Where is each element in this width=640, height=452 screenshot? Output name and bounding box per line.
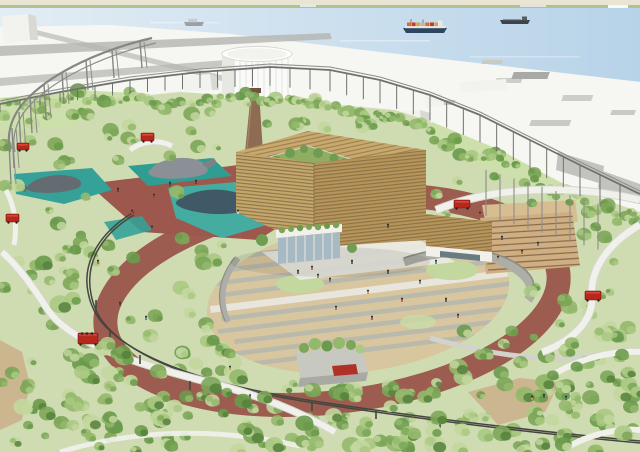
person xyxy=(169,182,171,186)
red-ride-car xyxy=(78,332,98,345)
person xyxy=(371,316,373,320)
person xyxy=(237,210,239,214)
person xyxy=(543,394,545,398)
person xyxy=(195,180,197,184)
scene-svg xyxy=(0,0,640,452)
person xyxy=(153,194,155,198)
person xyxy=(297,270,299,274)
person xyxy=(419,280,421,284)
person xyxy=(457,314,459,318)
red-ride-car xyxy=(585,291,601,302)
person xyxy=(117,188,119,192)
red-ride-car xyxy=(6,214,19,224)
person xyxy=(131,210,133,214)
person xyxy=(521,250,523,254)
person xyxy=(351,260,353,264)
person xyxy=(531,396,533,400)
person xyxy=(229,366,231,370)
person xyxy=(311,266,313,270)
person xyxy=(401,298,403,302)
person xyxy=(565,396,567,400)
person xyxy=(335,306,337,310)
person xyxy=(119,302,121,306)
person xyxy=(501,236,503,240)
person xyxy=(317,274,319,278)
person xyxy=(497,256,499,260)
person xyxy=(387,270,389,274)
red-ride-car xyxy=(141,133,154,143)
person xyxy=(97,260,99,264)
person xyxy=(387,224,389,228)
person xyxy=(329,278,331,282)
person xyxy=(435,260,437,264)
person xyxy=(151,226,153,230)
person xyxy=(145,316,147,320)
person xyxy=(367,290,369,294)
red-canopy xyxy=(332,364,358,376)
red-ride-car xyxy=(454,200,470,210)
person xyxy=(537,242,539,246)
aerial-park-rendering xyxy=(0,0,640,452)
person xyxy=(445,298,447,302)
person xyxy=(479,212,481,216)
